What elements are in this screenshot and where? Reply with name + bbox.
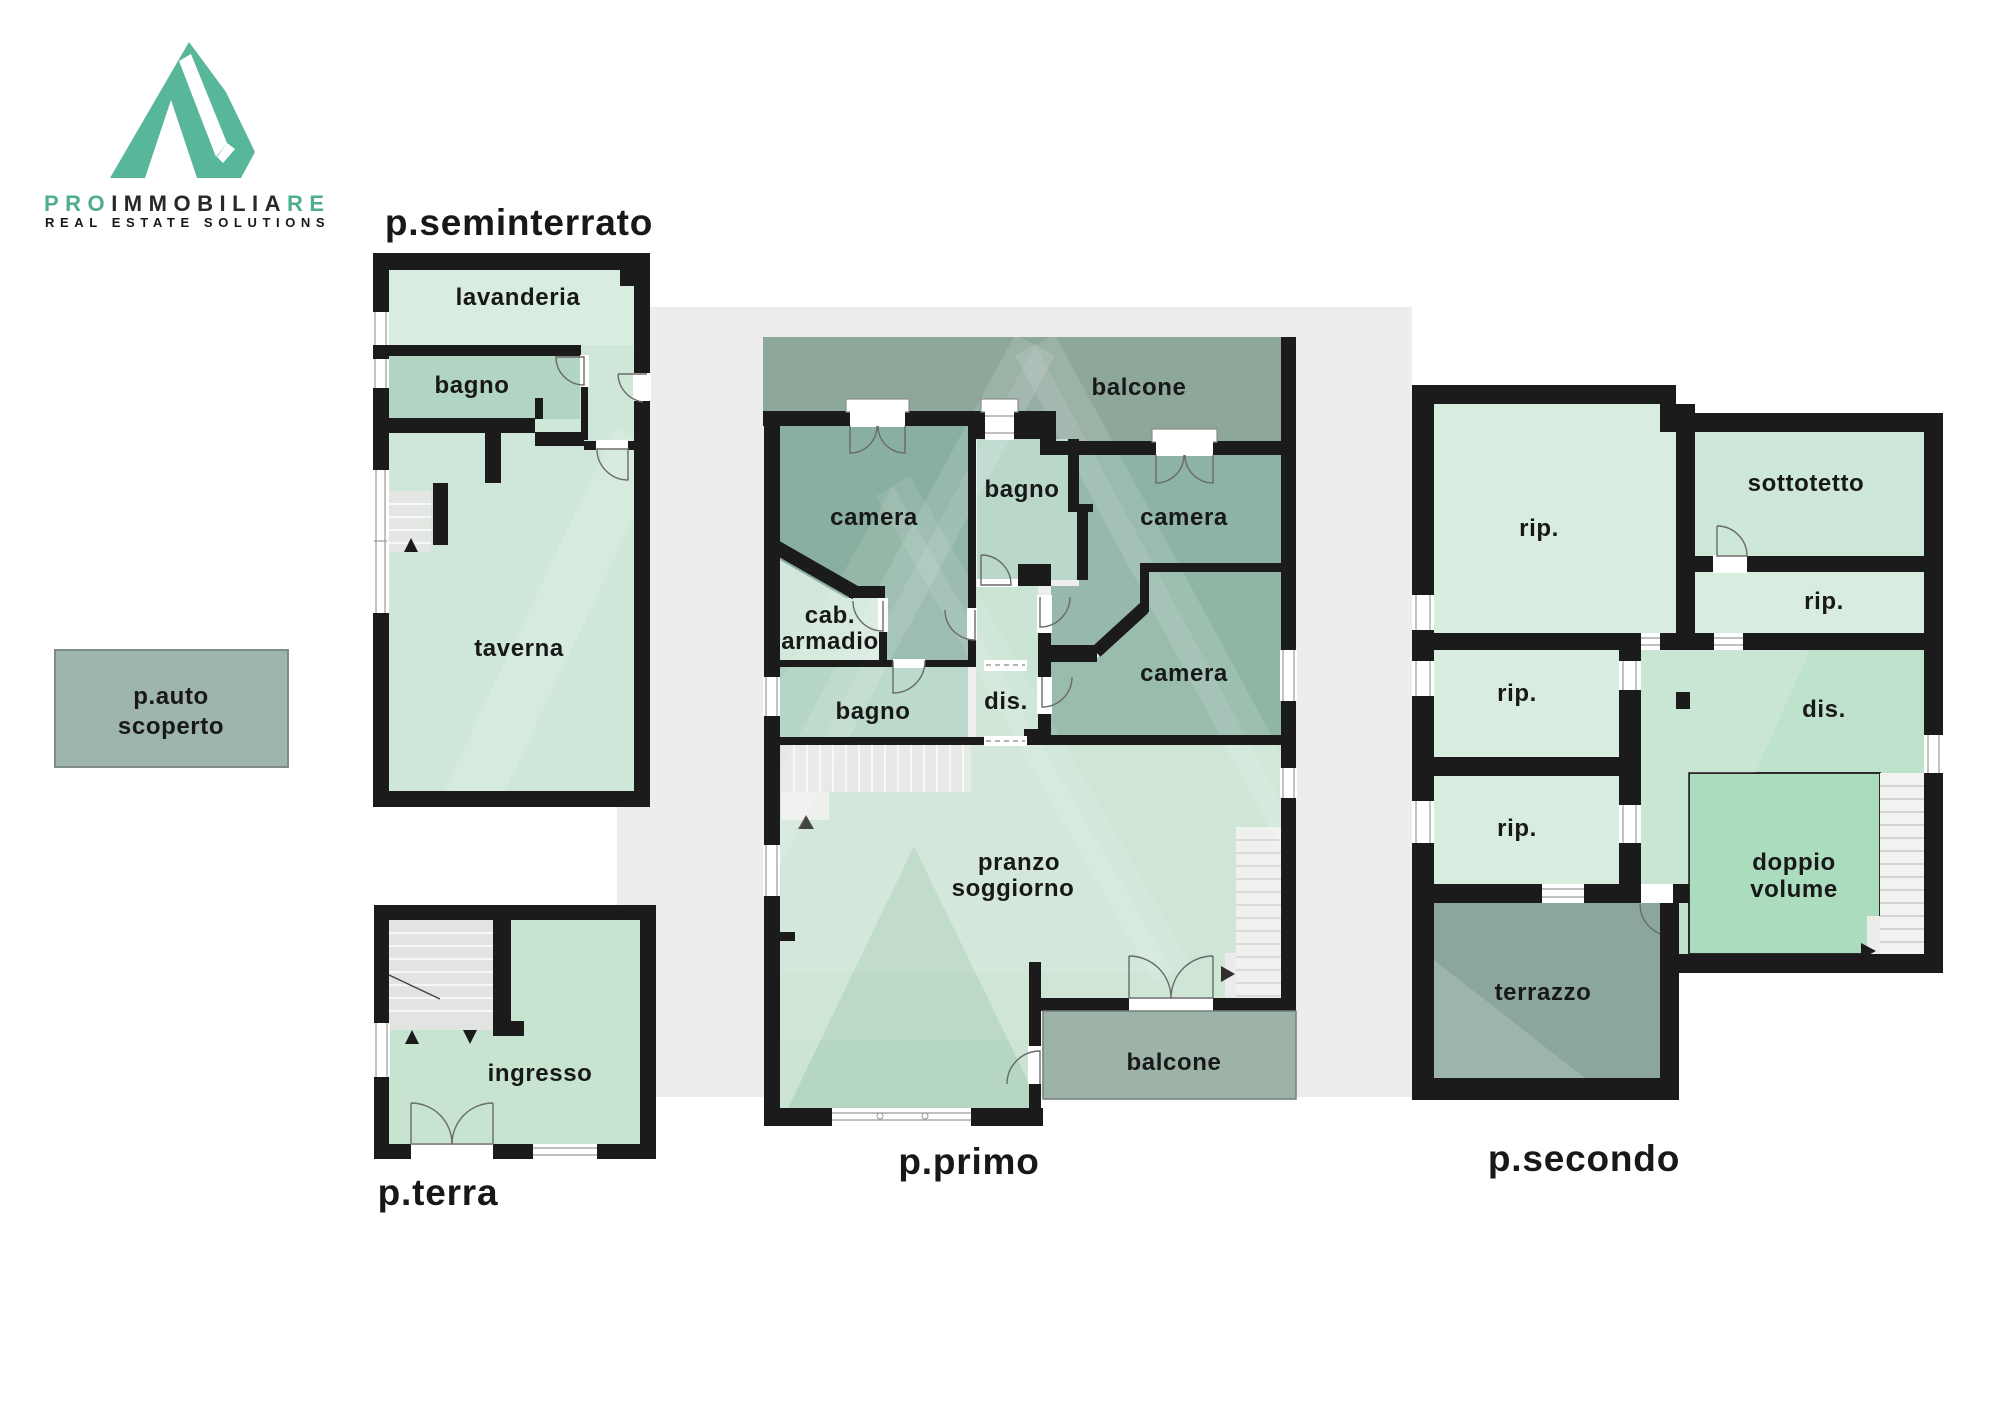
svg-text:bagno: bagno [836, 698, 911, 725]
svg-text:p.seminterrato: p.seminterrato [385, 202, 653, 243]
svg-text:bagno: bagno [435, 372, 510, 399]
svg-text:dis.: dis. [1802, 696, 1846, 723]
svg-text:rip.: rip. [1497, 815, 1537, 842]
svg-text:taverna: taverna [474, 635, 564, 662]
svg-text:sottotetto: sottotetto [1748, 470, 1865, 497]
svg-text:dis.: dis. [984, 688, 1028, 715]
svg-text:scoperto: scoperto [118, 713, 224, 740]
svg-text:balcone: balcone [1127, 1049, 1222, 1076]
svg-text:balcone: balcone [1092, 374, 1187, 401]
svg-text:doppio: doppio [1752, 849, 1836, 876]
svg-text:volume: volume [1750, 876, 1838, 903]
svg-text:PROIMMOBILIARE: PROIMMOBILIARE [44, 191, 331, 216]
svg-text:p.secondo: p.secondo [1488, 1138, 1680, 1179]
svg-text:rip.: rip. [1519, 515, 1559, 542]
svg-text:p.terra: p.terra [378, 1172, 499, 1213]
svg-text:pranzo: pranzo [978, 849, 1060, 876]
svg-text:terrazzo: terrazzo [1495, 979, 1592, 1006]
svg-text:REAL ESTATE SOLUTIONS: REAL ESTATE SOLUTIONS [45, 215, 330, 230]
svg-text:soggiorno: soggiorno [952, 875, 1075, 902]
svg-text:rip.: rip. [1497, 680, 1537, 707]
svg-text:cab.: cab. [805, 602, 855, 629]
svg-text:bagno: bagno [985, 476, 1060, 503]
svg-text:camera: camera [1140, 660, 1228, 687]
svg-text:camera: camera [1140, 504, 1228, 531]
svg-text:armadio: armadio [781, 628, 879, 655]
svg-text:p.primo: p.primo [898, 1141, 1039, 1182]
svg-text:rip.: rip. [1804, 588, 1844, 615]
svg-text:camera: camera [830, 504, 918, 531]
svg-text:lavanderia: lavanderia [456, 284, 581, 311]
svg-text:ingresso: ingresso [488, 1060, 593, 1087]
svg-text:p.auto: p.auto [133, 683, 209, 710]
